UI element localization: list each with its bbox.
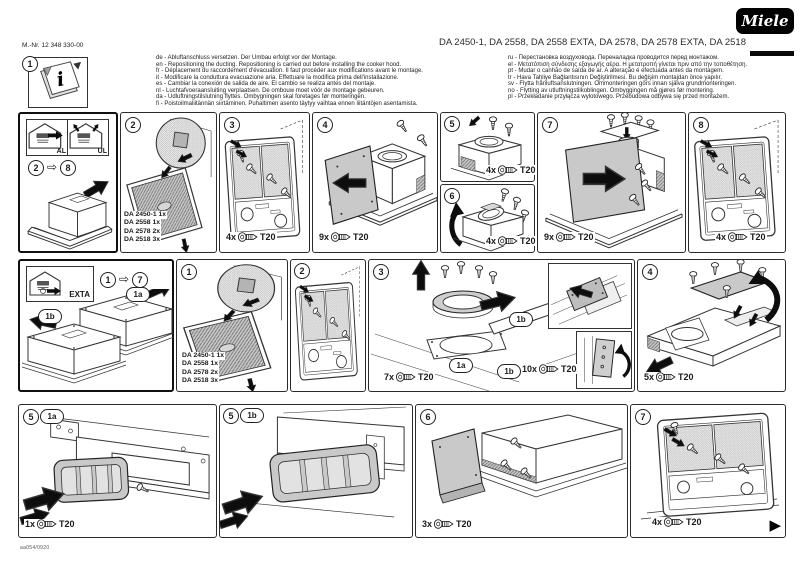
- panel-r1-overview: AL UL 2 ⇨ 8: [18, 112, 118, 253]
- screw-count: 1x: [25, 519, 35, 529]
- screw-count: 4x: [652, 517, 662, 527]
- screw-count: 4x: [486, 165, 496, 175]
- panel-r2-overview-exta: EXTA 1 ⇨ 7 1a 1b: [18, 259, 174, 392]
- panel-r3-step7: 7: [630, 404, 786, 538]
- torx-screw-icon: [37, 519, 57, 529]
- screw-count-label: 3x T20: [421, 519, 473, 529]
- step-range: 1 ⇨ 7: [100, 272, 148, 288]
- step-badge: 6: [420, 409, 436, 425]
- screw-count-label: 4x T20: [715, 232, 767, 242]
- torx-size: T20: [686, 517, 702, 527]
- instruction-line: fi - Poistoilmaliitännän siirtäminen. Pu…: [156, 101, 423, 108]
- screw-count-label: 5x T20: [643, 372, 695, 382]
- step-badge: 4: [642, 264, 658, 280]
- screw-count: 10x: [522, 364, 537, 374]
- model-line: DA 2518 3x: [123, 236, 161, 244]
- page-title: DA 2450-1, DA 2558, DA 2558 EXTA, DA 257…: [439, 37, 746, 48]
- torx-screw-icon: [539, 364, 559, 374]
- panel-r3-step5a: 5 1a: [18, 404, 217, 538]
- model-quantity-list: DA 2450-1 1x DA 2558 1x DA 2578 2x DA 25…: [123, 211, 167, 245]
- torx-screw-icon: [238, 232, 258, 242]
- panel-r2-step1: 1 DA 2450-1 1x DA 2558 1x DA 2578 2x DA …: [176, 259, 288, 392]
- variant-1a-badge: 1a: [449, 358, 473, 373]
- panel-r2-step4: 4 5: [637, 259, 786, 392]
- instruction-line: pl - Przekładanie przyłącza wylotowego. …: [508, 94, 747, 101]
- step-badge: 5: [23, 409, 39, 425]
- torx-screw-icon: [728, 232, 748, 242]
- step-badge: 7: [635, 409, 651, 425]
- screw-count-label: 9x T20: [318, 232, 370, 242]
- step-badge: 2: [294, 263, 310, 279]
- title-rule: [750, 51, 794, 56]
- doc-code: aa054/0920: [20, 545, 49, 551]
- model-line: DA 2450-1 1x: [123, 211, 167, 219]
- model-line: DA 2578 2x: [123, 228, 161, 236]
- material-number: M.-Nr. 12 348 330-00: [22, 42, 83, 49]
- screw-count: 9x: [544, 232, 554, 242]
- screw-count: 5x: [644, 372, 654, 382]
- panel-r3-step5b: 5 1b: [219, 404, 413, 538]
- panel-r1-step8: 8 4x T20: [688, 112, 786, 253]
- variant-1b-badge: 1b: [38, 309, 62, 324]
- panel-r3-step6: 6 3x T20: [415, 404, 628, 538]
- screw-count: 4x: [716, 232, 726, 242]
- model-line: DA 2558 1x: [181, 360, 219, 368]
- step-badge: 1: [181, 264, 197, 280]
- panel-r1-step5: 5 4x T20: [440, 112, 535, 182]
- step-badge: 3: [373, 264, 389, 280]
- torx-screw-icon: [498, 165, 518, 175]
- mode-selector-box: AL UL: [26, 119, 109, 156]
- torx-size: T20: [520, 236, 536, 246]
- screw-count: 9x: [319, 232, 329, 242]
- torx-size: T20: [520, 165, 536, 175]
- step-badge: 6: [444, 188, 460, 204]
- detail-inset-bracket: [576, 331, 632, 389]
- variant-1b-badge: 1b: [240, 408, 264, 423]
- mode-label-ul: UL: [98, 148, 107, 155]
- screw-count-label: 9x T20: [543, 232, 595, 242]
- panel-refit-illustration: [416, 405, 627, 537]
- step-from-badge: 2: [28, 160, 44, 176]
- screw-count-label: 4x T20: [485, 236, 537, 246]
- torx-screw-icon: [331, 232, 351, 242]
- panel-r2-step2: 2: [290, 259, 366, 392]
- instructions-left: de - Abluftanschluss versetzen. Der Umba…: [156, 55, 423, 107]
- torx-size: T20: [578, 232, 594, 242]
- slide-plate-detail-illustration: [549, 264, 631, 328]
- torx-size: T20: [456, 519, 472, 529]
- step-badge: 8: [693, 117, 709, 133]
- step-to-badge: 7: [132, 272, 148, 288]
- screw-count-label: 7x T20: [383, 372, 435, 382]
- exta-units-illustration: [22, 289, 174, 393]
- step-from-badge: 1: [100, 272, 116, 288]
- torx-screw-icon: [664, 517, 684, 527]
- screw-count-label: 4x T20: [651, 517, 703, 527]
- screw-count: 7x: [384, 372, 394, 382]
- step-range: 2 ⇨ 8: [28, 160, 76, 176]
- torx-size: T20: [260, 232, 276, 242]
- variant-1a-badge: 1a: [40, 409, 64, 424]
- torx-screw-icon: [498, 236, 518, 246]
- duct-connector-1b-illustration: [220, 405, 412, 537]
- screw-count-label: 1x T20: [24, 519, 76, 529]
- detail-inset-slide-plate: [548, 263, 632, 329]
- variant-1b-badge: 1b: [497, 364, 521, 379]
- model-line: DA 2518 3x: [181, 377, 219, 385]
- model-line: DA 2450-1 1x: [181, 352, 225, 360]
- step-badge: 5: [444, 116, 460, 132]
- panel-r1-step3: 3 4x T20: [219, 112, 310, 253]
- step-badge: 4: [317, 117, 333, 133]
- torx-screw-icon: [556, 232, 576, 242]
- mode-label-al: AL: [57, 148, 66, 155]
- miele-logo: Miele: [736, 8, 794, 34]
- panel-r1-step2: 2 DA 2450-1 1x DA 2558 1x DA 2578 2x DA …: [120, 112, 217, 253]
- range-arrow-icon: ⇨: [47, 161, 57, 173]
- duct-connector-1a-illustration: [19, 405, 216, 537]
- instruction-sheet: M.-Nr. 12 348 330-00 DA 2450-1, DA 2558,…: [0, 0, 802, 567]
- torx-size: T20: [353, 232, 369, 242]
- hood-unit-illustration: [22, 176, 114, 250]
- torx-screw-icon: [656, 372, 676, 382]
- panel-r1-step4: 4 9x: [312, 112, 438, 253]
- bracket-detail-illustration: [577, 332, 631, 388]
- mode-label-exta: EXTA: [69, 290, 90, 299]
- step-badge: 2: [125, 117, 141, 133]
- torx-size: T20: [418, 372, 434, 382]
- instruction-line: ru - Перестановка воздуховода. Переналад…: [508, 55, 747, 62]
- step-to-badge: 8: [60, 160, 76, 176]
- screw-count-label: 4x T20: [225, 232, 277, 242]
- model-line: DA 2558 1x: [123, 219, 161, 227]
- panel-r2-step3: 3: [368, 259, 635, 392]
- panel-r1-step6: 6 4x T20: [440, 184, 535, 253]
- screw-count: 4x: [226, 232, 236, 242]
- instructions-right: ru - Перестановка воздуховода. Переналад…: [508, 55, 747, 101]
- panel-r1-step7: 7 9x: [537, 112, 686, 253]
- front-frame-illustration: [291, 260, 365, 391]
- model-quantity-list: DA 2450-1 1x DA 2558 1x DA 2578 2x DA 25…: [181, 352, 225, 386]
- torx-size: T20: [59, 519, 75, 529]
- model-line: DA 2578 2x: [181, 369, 219, 377]
- intro-step-badge: 1: [22, 56, 38, 72]
- torx-screw-icon: [434, 519, 454, 529]
- screw-count: 4x: [486, 236, 496, 246]
- torx-screw-icon: [396, 372, 416, 382]
- step-badge: 3: [224, 117, 240, 133]
- screw-count-label: 4x T20: [485, 165, 537, 175]
- range-arrow-icon: ⇨: [119, 273, 129, 285]
- screw-count-label: 10x T20: [521, 364, 578, 374]
- page-continues-icon: ▶: [769, 518, 781, 533]
- instruction-line: sv - Flytta frånluftsanslutningen. Ommon…: [508, 81, 747, 88]
- instruction-line: pt - Mudar o canhão de saída de ar. A al…: [508, 68, 747, 75]
- torx-size: T20: [750, 232, 766, 242]
- torx-size: T20: [678, 372, 694, 382]
- variant-1a-badge: 1a: [126, 287, 150, 302]
- torx-size: T20: [561, 364, 577, 374]
- instruction-line: fr - Déplacement du raccordement d'évacu…: [156, 68, 423, 75]
- variant-1b-badge: 1b: [509, 312, 533, 327]
- step-badge: 7: [542, 117, 558, 133]
- step-badge: 5: [223, 408, 239, 424]
- screw-count: 3x: [422, 519, 432, 529]
